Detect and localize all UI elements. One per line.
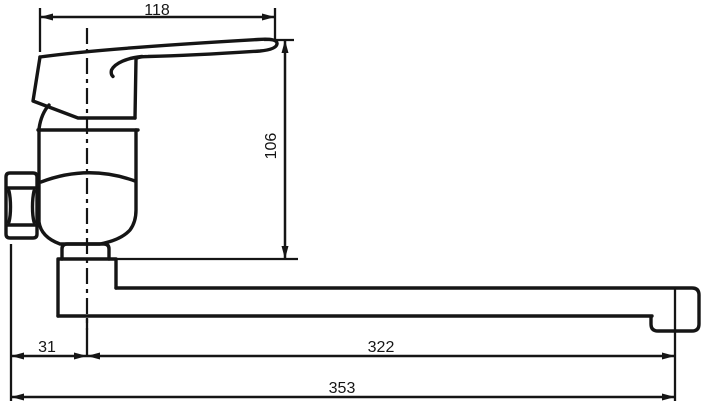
faucet-dimension-drawing: 118 106 31 322 353 — [0, 0, 707, 405]
wall-nut-barrel-left — [9, 191, 11, 222]
dim-label-axis-to-spout-end: 322 — [368, 339, 395, 356]
lever-handle — [40, 39, 277, 118]
dim-label-overall-height: 106 — [263, 133, 280, 160]
mounting-flange — [62, 244, 109, 259]
arrowhead-right — [262, 14, 275, 21]
dim-label-overall-length: 353 — [329, 380, 356, 397]
arrowhead-right — [662, 353, 675, 360]
arrowhead-down — [282, 246, 289, 259]
dim-wall-to-axis-and-spout: 31 322 — [11, 244, 675, 401]
technical-drawing-canvas: 118 106 31 322 353 — [0, 0, 707, 405]
wall-nut — [6, 173, 37, 238]
wall-nut-barrel-right — [33, 191, 35, 222]
arrowhead-right — [662, 394, 675, 401]
arrowhead-left — [40, 14, 53, 21]
spout-pipe — [116, 288, 699, 331]
dim-label-wall-to-axis: 31 — [38, 339, 56, 356]
arrowhead-axis-left — [74, 353, 87, 360]
faucet-outline — [6, 39, 699, 331]
dim-overall-height: 106 — [116, 40, 298, 259]
cartridge-cap — [33, 57, 135, 118]
dim-label-handle-projection: 118 — [144, 2, 170, 19]
cap-neck-left-curve — [39, 105, 49, 129]
arrowhead-up — [282, 40, 289, 53]
dim-overall-length: 353 — [11, 380, 675, 401]
arrowhead-left — [11, 394, 24, 401]
arrowhead-left — [11, 353, 24, 360]
arrowhead-axis-right — [87, 353, 100, 360]
